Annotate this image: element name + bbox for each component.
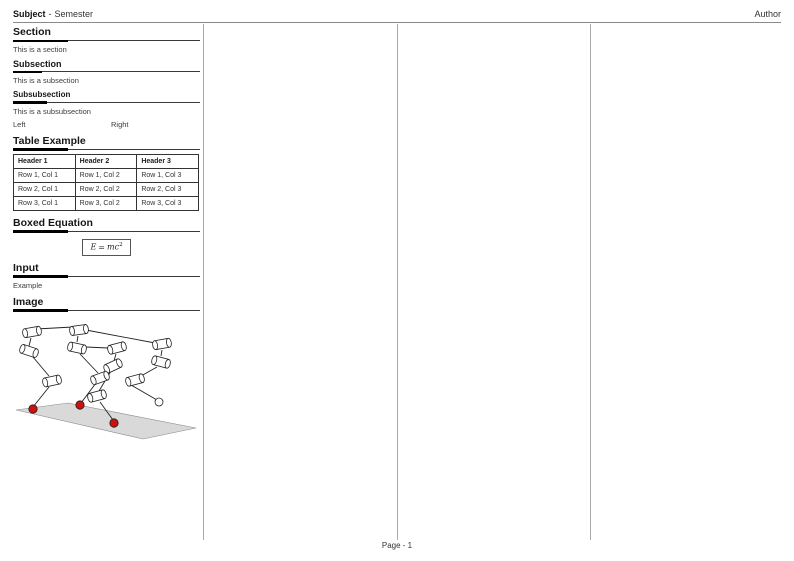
link-line [86,347,108,348]
document-page: Subject-Semester Author Section This is … [0,0,794,561]
subsection-body: This is a subsection [13,76,200,85]
ground-plane [16,403,196,439]
table-header-cell: Header 2 [75,154,137,168]
semester-label: Semester [55,9,94,19]
two-column-row: Left Right [13,120,200,129]
table-row: Row 3, Col 1 Row 3, Col 2 Row 3, Col 3 [14,196,199,210]
cylinder-body [125,373,145,387]
section-body: This is a section [13,45,200,54]
boxed-equation-heading: Boxed Equation [13,217,200,232]
cylinder-body [19,344,40,358]
cylinder-body [69,324,89,336]
image-heading: Image [13,296,200,311]
cylinder-body [107,341,127,355]
link-line [33,357,49,376]
table-cell: Row 3, Col 2 [75,196,137,210]
cylinder-body [90,370,111,385]
table-cell: Row 1, Col 2 [75,168,137,182]
cylinder-body [152,338,172,350]
equation-relation: = [98,243,105,252]
subsubsection-body: This is a subsubsection [13,107,200,116]
boxed-equation: E=mc2 [82,239,130,256]
table-row: Row 2, Col 1 Row 2, Col 2 Row 2, Col 3 [14,182,199,196]
table-cell: Row 2, Col 1 [14,182,76,196]
column-rule-1 [203,24,204,540]
cylinder-body [151,355,171,369]
link-line [77,336,78,342]
right-column-text: Right [111,120,129,129]
link-line [161,350,162,356]
contact-point [110,419,118,427]
cylinder-body [67,341,87,354]
subsection-heading: Subsection [13,59,200,72]
link-line [36,327,73,329]
left-column: Section This is a section Subsection Thi… [13,26,200,443]
equation-container: E=mc2 [13,237,200,256]
header-title: Subject-Semester [13,9,93,19]
column-rule-2 [397,24,398,540]
table-header-cell: Header 3 [137,154,199,168]
link-line [131,385,157,400]
equation-lhs: E [90,243,96,252]
subject-label: Subject [13,9,46,19]
table-example-heading: Table Example [13,135,200,150]
equation-rhs: mc [107,243,119,252]
table-cell: Row 1, Col 1 [14,168,76,182]
link-line [80,354,98,373]
subsubsection-heading: Subsubsection [13,90,200,102]
table-cell: Row 3, Col 3 [137,196,199,210]
column-rule-3 [590,24,591,540]
linkage-figure [13,315,200,443]
cylinder-body [22,326,42,338]
page-number: Page - 1 [0,541,794,550]
link-line [33,387,49,407]
contact-point [29,405,37,413]
table-cell: Row 2, Col 2 [75,182,137,196]
equation-exponent: 2 [119,242,123,248]
free-joint [155,398,163,406]
title-separator: - [49,9,52,19]
table-cell: Row 1, Col 3 [137,168,199,182]
author-label: Author [754,9,781,19]
link-line [86,330,155,343]
table-header-row: Header 1 Header 2 Header 3 [14,154,199,168]
input-heading: Input [13,262,200,277]
contact-point [76,401,84,409]
link-line [29,338,31,346]
link-line [141,367,157,376]
table-cell: Row 3, Col 1 [14,196,76,210]
section-heading: Section [13,26,200,41]
cylinder-body [42,374,62,387]
page-header: Subject-Semester Author [13,7,781,23]
table-row: Row 1, Col 1 Row 1, Col 2 Row 1, Col 3 [14,168,199,182]
example-table: Header 1 Header 2 Header 3 Row 1, Col 1 … [13,154,199,211]
input-body: Example [13,281,200,290]
table-header-cell: Header 1 [14,154,76,168]
left-column-text: Left [13,120,111,129]
table-cell: Row 2, Col 3 [137,182,199,196]
